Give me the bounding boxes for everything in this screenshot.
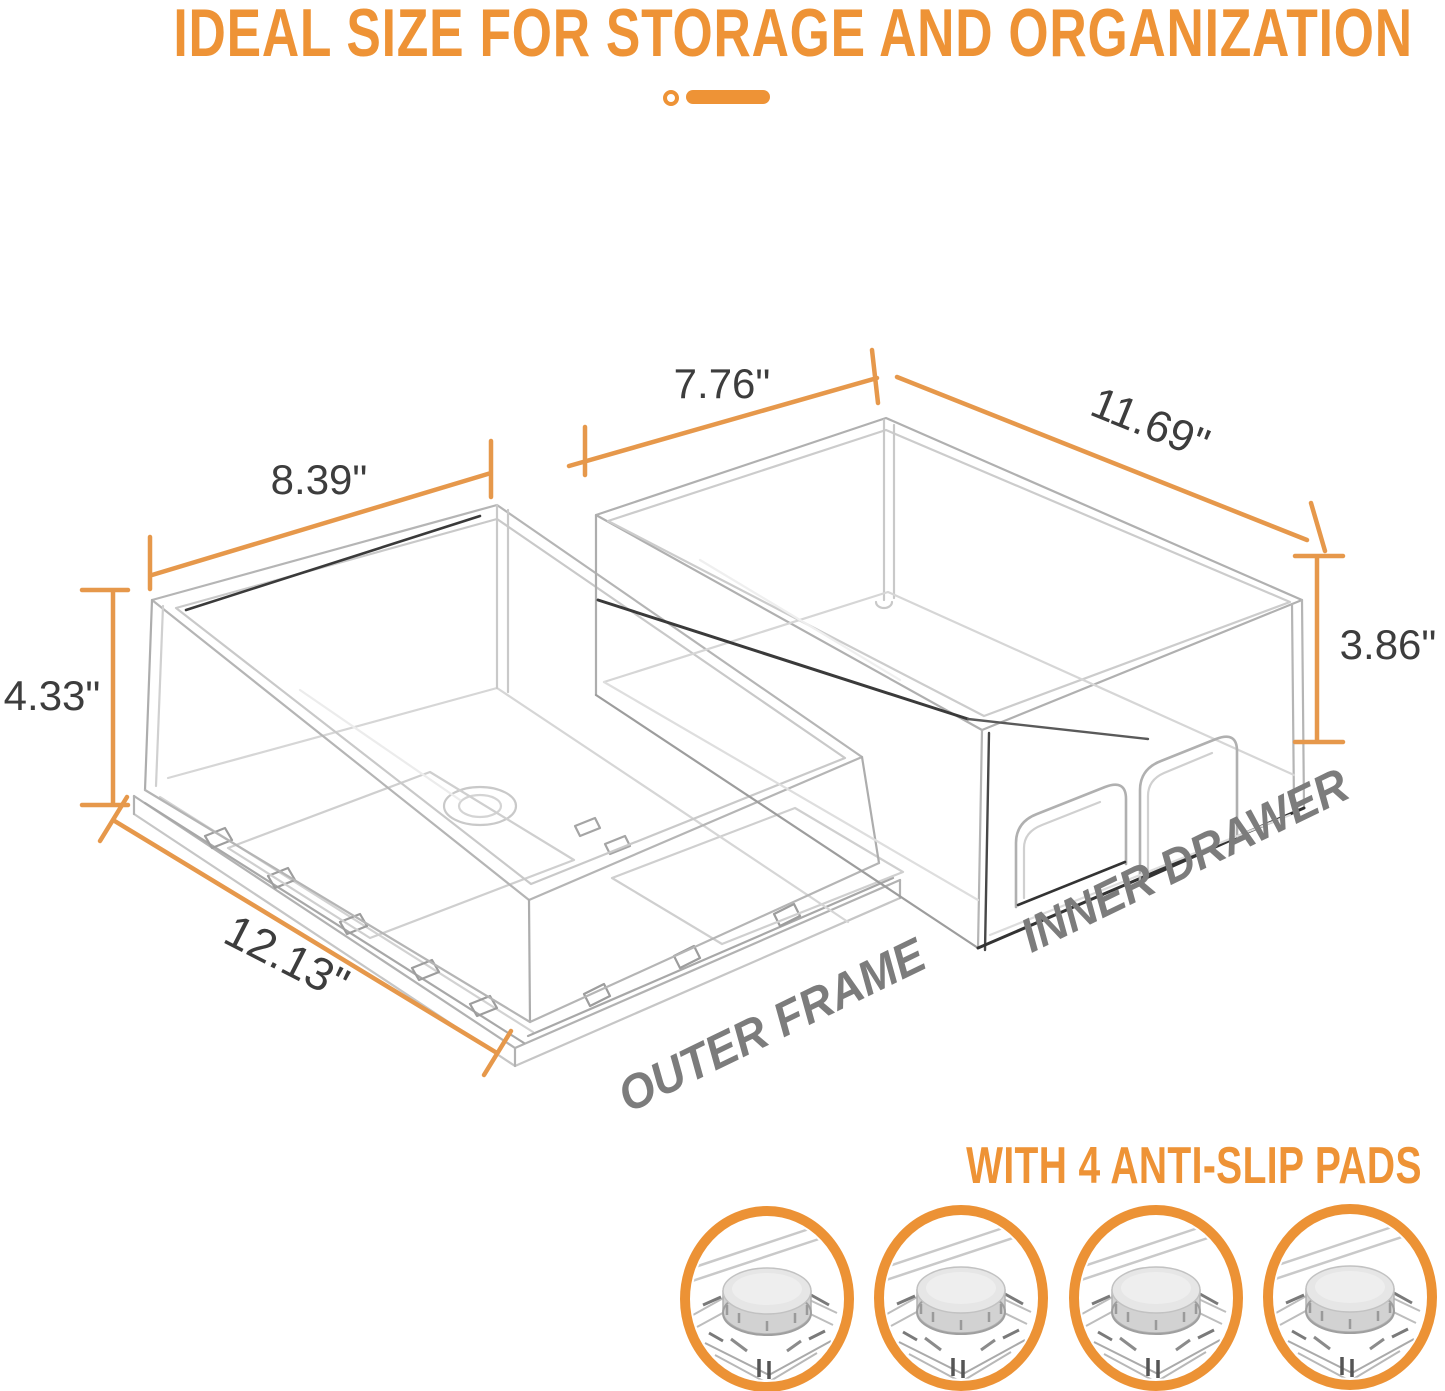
pads-heading: WITH 4 ANTI-SLIP PADS: [966, 1136, 1422, 1196]
dim-label-drawer-width: 7.76": [674, 360, 771, 408]
dim-label-frame-height: 4.33": [4, 672, 101, 720]
anti-slip-pad-badge: [879, 1210, 1043, 1386]
anti-slip-pad-badge: [1074, 1210, 1238, 1386]
anti-slip-pad-badge: [1268, 1209, 1432, 1385]
anti-slip-pad-badge: [685, 1211, 849, 1387]
dim-label-frame-width: 8.39": [271, 456, 368, 504]
infographic-canvas: IDEAL SIZE FOR STORAGE AND ORGANIZATION: [0, 0, 1445, 1391]
dim-label-drawer-height: 3.86": [1340, 621, 1437, 669]
outer-frame-drawing: [134, 505, 903, 1066]
